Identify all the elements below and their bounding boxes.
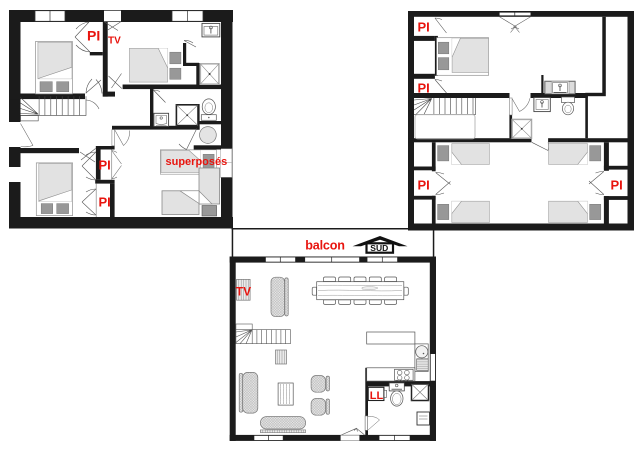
- svg-text:LL: LL: [370, 390, 384, 402]
- svg-text:superposés: superposés: [166, 156, 228, 168]
- svg-text:PI: PI: [418, 20, 430, 35]
- svg-text:PI: PI: [418, 81, 430, 96]
- svg-text:TV: TV: [108, 36, 121, 47]
- svg-text:PI: PI: [611, 178, 623, 193]
- svg-text:PI: PI: [99, 195, 111, 210]
- svg-text:TV: TV: [236, 285, 251, 299]
- svg-text:PI: PI: [87, 28, 100, 44]
- svg-text:balcon: balcon: [305, 239, 344, 253]
- svg-text:PI: PI: [418, 178, 430, 193]
- svg-text:PI: PI: [99, 158, 111, 173]
- svg-text:SUD: SUD: [370, 243, 388, 253]
